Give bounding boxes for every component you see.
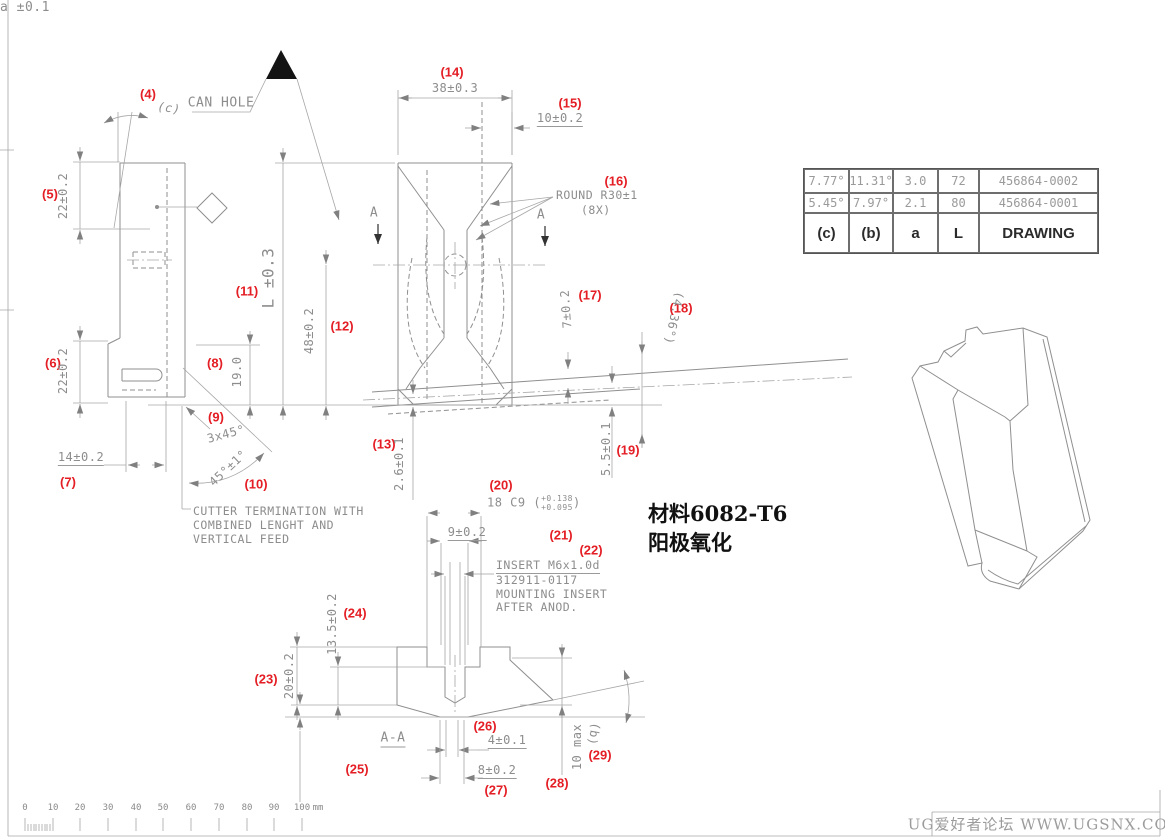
main-front-view [148,102,852,414]
callout-12: (12) [330,319,353,334]
dim-19: 19.0 [230,357,244,388]
callout-20: (20) [489,478,512,493]
table-cell: 7.97° [849,193,893,213]
callout-25: (25) [345,762,368,777]
ruler-label: 40 [131,803,142,813]
left-profile-view [108,112,272,509]
dim-22-upper: 22±0.2 [56,173,70,219]
dim-13-5: 13.5±0.2 [325,593,339,655]
drawing-variant-table: 7.77° 11.31° 3.0 72 456864-0002 5.45° 7.… [803,168,1099,254]
ruler-label: 0 [22,803,27,813]
callout-17: (17) [578,288,601,303]
callout-24: (24) [343,606,366,621]
dim-10max: 10 max [570,724,584,770]
ruler-label: 50 [158,803,169,813]
dim-c-angle: (c) [157,99,182,116]
section-marker-a-left: A [370,206,378,221]
section-aa-label: A-A [381,731,406,748]
ruler-unit: mm [313,803,324,813]
table-cell: 3.0 [893,169,938,193]
dim-18c9: 18 C9 (+0.138+0.095) [487,494,581,512]
dim-7: 7±0.2 [558,289,575,329]
callout-22: (22) [579,543,602,558]
insert-note-line4: AFTER ANOD. [496,600,578,614]
table-cell: 456864-0001 [979,193,1098,213]
cutter-note-line1: CUTTER TERMINATION WITH [193,504,364,518]
callout-15: (15) [558,96,581,111]
callout-29: (29) [588,748,611,763]
callout-26: (26) [473,719,496,734]
flag-triangle-icon [266,50,297,79]
insert-note-line3: MOUNTING INSERT [496,587,607,601]
section-marker-a-right: A [537,208,545,223]
callout-8: (8) [207,356,223,371]
dim-14: 14±0.2 [58,450,104,466]
table-cell: 72 [938,169,979,193]
isometric-view [912,327,1090,589]
material-note-line1: 材料6082-T6 [648,498,787,528]
ruler-label: 70 [214,803,225,813]
callout-19: (19) [616,443,639,458]
dim-48: 48±0.2 [302,308,316,354]
callout-27: (27) [484,783,507,798]
insert-note-line1: INSERT M6x1.0d [496,558,600,574]
ruler-label: 100 [294,803,310,813]
callout-10: (10) [244,477,267,492]
table-cell: 11.31° [849,169,893,193]
ruler-label: 90 [269,803,280,813]
dim-10: 10±0.2 [537,111,583,127]
table-header-b: (b) [849,213,893,253]
dim-9: 9±0.2 [448,525,487,541]
callout-21: (21) [549,528,572,543]
dim-L: L ±0.3 [259,248,278,309]
table-header-drawing: DRAWING [979,213,1098,253]
table-cell: 456864-0002 [979,169,1098,193]
material-note-line2: 阳极氧化 [648,527,732,557]
dim-2-6: 2.6±0.1 [392,437,406,491]
ruler-label: 20 [75,803,86,813]
cutter-note-line3: VERTICAL FEED [193,532,290,546]
table-header-l: L [938,213,979,253]
table-cell: 80 [938,193,979,213]
round-note-line1: ROUND R30±1 [556,188,638,202]
watermark: UG爱好者论坛 WWW.UGSNX.COM [908,814,1165,835]
table-header-c: (c) [804,213,849,253]
callout-7: (7) [60,475,76,490]
round-note-line2: (8X) [581,203,611,217]
ruler-label: 60 [186,803,197,813]
callout-16: (16) [604,174,627,189]
drawing-sheet: (4) (5) (6) (7) (8) (9) (10) (11) (12) (… [0,0,1165,840]
table-header-a: a [893,213,938,253]
table-cell: 2.1 [893,193,938,213]
table-cell: 5.45° [804,193,849,213]
ruler-label: 80 [242,803,253,813]
callout-4: (4) [140,87,156,102]
dim-a: a ±0.1 [0,0,50,15]
ruler-label: 10 [48,803,59,813]
callout-9: (9) [208,410,224,425]
callout-23: (23) [254,672,277,687]
dim-22-lower: 22±0.2 [56,348,70,394]
dim-8: 8±0.2 [478,763,517,779]
cutter-note-line2: COMBINED LENGHT AND [193,518,334,532]
callout-11: (11) [236,284,258,299]
table-cell: 7.77° [804,169,849,193]
callout-14: (14) [440,65,463,80]
dim-4: 4±0.1 [488,733,527,749]
dim-5-5: 5.5±0.1 [599,422,613,476]
insert-note-line2: 312911-0117 [496,573,578,587]
callout-28: (28) [545,776,568,791]
dim-38: 38±0.3 [432,81,478,95]
dim-20: 20±0.2 [282,653,296,699]
scale-ruler [25,818,302,831]
ruler-label: 30 [103,803,114,813]
can-hole-label: CAN HOLE [188,96,255,111]
